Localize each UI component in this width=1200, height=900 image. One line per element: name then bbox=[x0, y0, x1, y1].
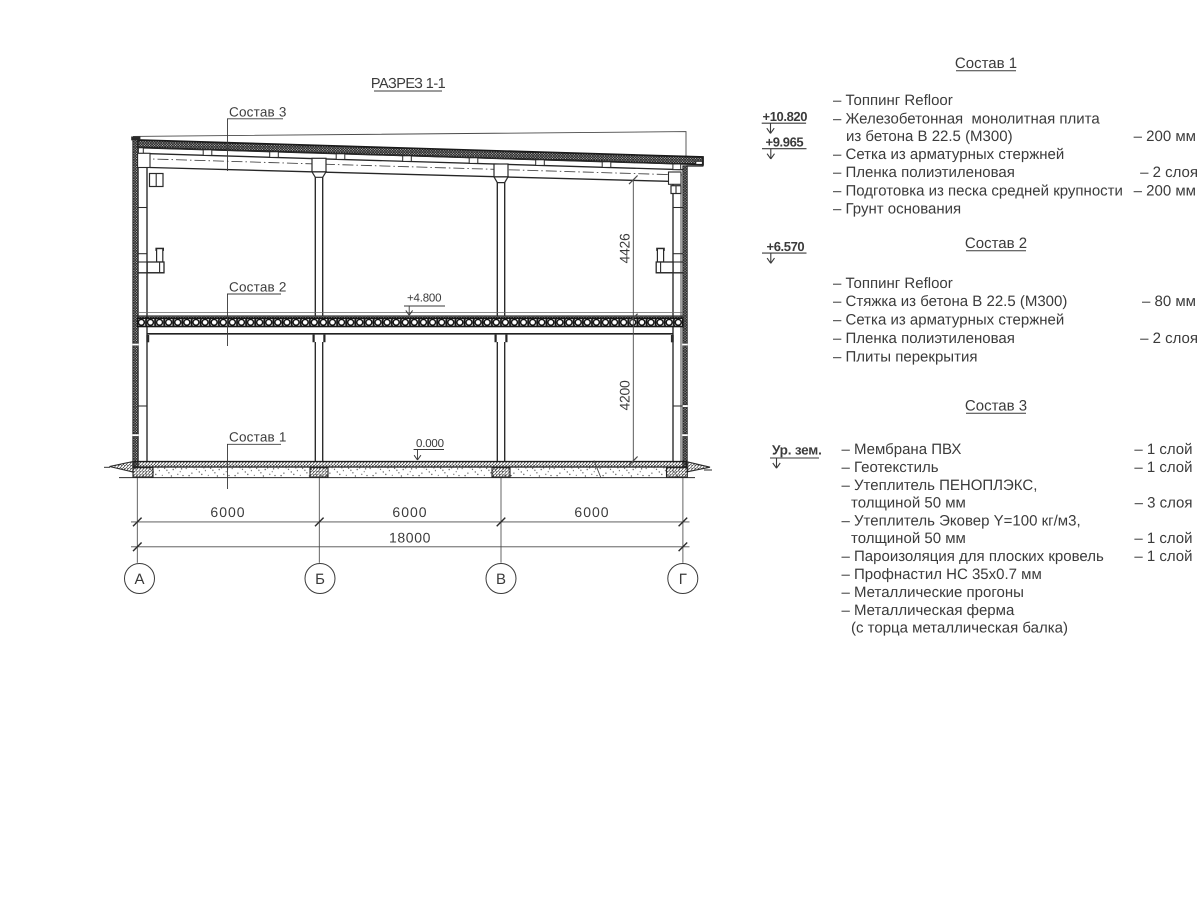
svg-text:– Утеплитель Эковер Y=100 кг/м: – Утеплитель Эковер Y=100 кг/м3, bbox=[842, 513, 1081, 530]
svg-text:6000: 6000 bbox=[210, 504, 245, 520]
svg-text:4426: 4426 bbox=[617, 233, 633, 263]
svg-text:– Стяжка из бетона В 22.5 (М30: – Стяжка из бетона В 22.5 (М300) bbox=[833, 293, 1067, 310]
svg-text:– Грунт основания: – Грунт основания bbox=[833, 201, 961, 218]
svg-text:– 2 слоя: – 2 слоя bbox=[1140, 330, 1198, 347]
svg-text:Г: Г bbox=[679, 571, 687, 588]
svg-text:Состав 1: Состав 1 bbox=[229, 430, 287, 445]
svg-text:Состав 3: Состав 3 bbox=[229, 105, 287, 120]
svg-text:толщиной 50 мм: толщиной 50 мм bbox=[851, 530, 966, 547]
svg-text:– 3 слоя: – 3 слоя bbox=[1135, 495, 1193, 512]
svg-text:– 1 слой: – 1 слой bbox=[1134, 441, 1192, 458]
svg-text:– 200 мм: – 200 мм bbox=[1134, 128, 1196, 145]
svg-text:– Плиты перекрытия: – Плиты перекрытия bbox=[833, 349, 977, 366]
svg-text:Состав 3: Состав 3 bbox=[965, 398, 1027, 415]
svg-text:+10.820: +10.820 bbox=[763, 109, 808, 124]
svg-text:из бетона В 22.5 (М300): из бетона В 22.5 (М300) bbox=[846, 128, 1013, 145]
svg-text:– Сетка из арматурных стержней: – Сетка из арматурных стержней bbox=[833, 146, 1064, 163]
svg-text:А: А bbox=[134, 571, 144, 588]
svg-text:– Топпинг Refloor: – Топпинг Refloor bbox=[833, 275, 953, 292]
svg-text:– Сетка из арматурных стержней: – Сетка из арматурных стержней bbox=[833, 312, 1064, 329]
svg-text:4200: 4200 bbox=[617, 380, 633, 410]
svg-text:– Геотекстиль: – Геотекстиль bbox=[842, 459, 939, 476]
svg-text:Состав 2: Состав 2 bbox=[965, 235, 1027, 252]
svg-text:– 1 слой: – 1 слой bbox=[1134, 548, 1192, 565]
svg-text:6000: 6000 bbox=[392, 504, 427, 520]
svg-text:РАЗРЕЗ 1-1: РАЗРЕЗ 1-1 bbox=[371, 76, 446, 92]
svg-text:6000: 6000 bbox=[574, 504, 609, 520]
svg-text:18000: 18000 bbox=[389, 530, 431, 546]
svg-text:+9.965: +9.965 bbox=[766, 134, 804, 149]
svg-text:– Утеплитель ПЕНОПЛЭКС,: – Утеплитель ПЕНОПЛЭКС, bbox=[842, 477, 1038, 494]
svg-text:толщиной 50 мм: толщиной 50 мм bbox=[851, 495, 966, 512]
svg-text:– Пленка полиэтиленовая: – Пленка полиэтиленовая bbox=[833, 330, 1015, 347]
svg-text:+4.800: +4.800 bbox=[407, 293, 441, 305]
svg-text:– Подготовка из песка средней: – Подготовка из песка средней крупности bbox=[833, 183, 1123, 200]
svg-text:– Пленка полиэтиленовая: – Пленка полиэтиленовая bbox=[833, 164, 1015, 181]
svg-text:0.000: 0.000 bbox=[416, 438, 444, 450]
svg-text:– 1 слой: – 1 слой bbox=[1134, 530, 1192, 547]
svg-text:Б: Б bbox=[315, 571, 325, 588]
svg-text:– Металлические прогоны: – Металлические прогоны bbox=[842, 584, 1024, 601]
svg-text:(с торца металлическая балка): (с торца металлическая балка) bbox=[851, 620, 1068, 637]
svg-text:– 1 слой: – 1 слой bbox=[1134, 459, 1192, 476]
svg-text:– 80 мм: – 80 мм bbox=[1142, 293, 1196, 310]
svg-text:– Мембрана ПВХ: – Мембрана ПВХ bbox=[842, 441, 962, 458]
svg-text:– 2 слоя: – 2 слоя bbox=[1140, 164, 1198, 181]
svg-text:– Железобетонная монолитная п: – Железобетонная монолитная плита bbox=[833, 111, 1100, 128]
svg-text:– 200 мм: – 200 мм bbox=[1134, 183, 1196, 200]
svg-text:– Пароизоляция для плоских кро: – Пароизоляция для плоских кровель bbox=[842, 548, 1104, 565]
svg-text:– Профнастил НС 35х0.7 мм: – Профнастил НС 35х0.7 мм bbox=[842, 566, 1042, 583]
svg-text:В: В bbox=[496, 571, 506, 588]
svg-text:– Металлическая ферма: – Металлическая ферма bbox=[842, 602, 1015, 619]
svg-text:– Топпинг Refloor: – Топпинг Refloor bbox=[833, 92, 953, 109]
svg-text:Состав 2: Состав 2 bbox=[229, 280, 287, 295]
svg-text:Ур. зем.: Ур. зем. bbox=[772, 443, 822, 458]
svg-text:Состав 1: Состав 1 bbox=[955, 55, 1017, 72]
svg-text:+6.570: +6.570 bbox=[767, 239, 805, 254]
